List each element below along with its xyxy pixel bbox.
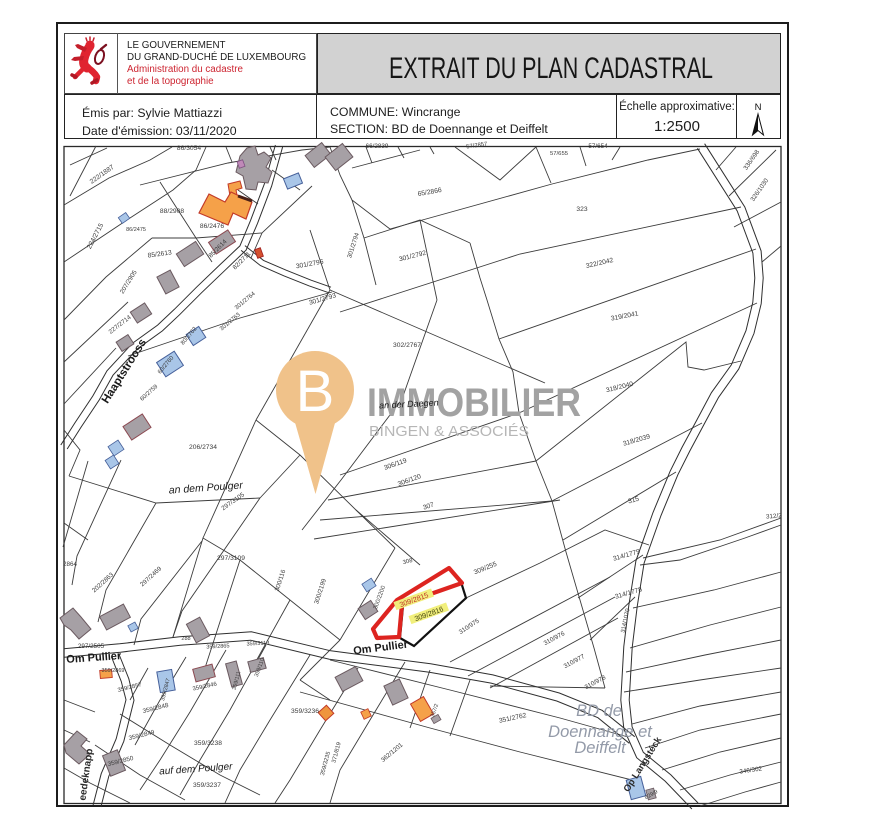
svg-text:371/819: 371/819 [331,742,342,764]
svg-text:301/2763: 301/2763 [219,312,242,333]
svg-text:297/3109: 297/3109 [217,555,245,562]
svg-text:308: 308 [402,558,414,566]
svg-text:318/2040: 318/2040 [605,381,634,395]
svg-text:206/2734: 206/2734 [189,444,217,451]
svg-text:359/3236: 359/3236 [291,708,319,715]
svg-text:300/116: 300/116 [274,568,288,592]
svg-text:351/2762: 351/2762 [498,712,527,725]
svg-text:BD de: BD de [576,702,622,720]
svg-text:an dem Poulger: an dem Poulger [168,479,243,496]
svg-text:359/2865: 359/2865 [206,643,230,650]
svg-text:319/2041: 319/2041 [610,310,639,322]
svg-text:301/2792: 301/2792 [398,250,427,264]
svg-text:318/2039: 318/2039 [622,433,651,447]
svg-text:300/2199: 300/2199 [313,577,328,605]
svg-text:Om Pullier: Om Pullier [353,639,410,658]
svg-text:314/1779: 314/1779 [612,548,641,562]
svg-text:306/119: 306/119 [383,457,408,472]
svg-text:359/3113: 359/3113 [246,640,269,647]
svg-text:314/1070: 314/1070 [621,607,632,633]
svg-text:297/2505: 297/2505 [78,643,105,650]
svg-text:88/2908: 88/2908 [160,208,184,215]
svg-text:359/2849: 359/2849 [128,729,156,742]
svg-text:362/1201: 362/1201 [380,741,405,764]
svg-text:315: 315 [627,496,640,506]
svg-text:312/2: 312/2 [766,512,783,520]
svg-text:Deiffelt: Deiffelt [574,739,627,757]
svg-text:307: 307 [422,501,435,511]
svg-text:86/3054: 86/3054 [177,145,201,152]
svg-text:301/2796: 301/2796 [295,259,324,271]
svg-text:309/255: 309/255 [473,561,498,577]
svg-text:310/977: 310/977 [563,653,587,670]
svg-text:65/2866: 65/2866 [417,187,442,198]
svg-text:66/2839: 66/2839 [366,143,389,150]
svg-text:326/1030: 326/1030 [749,177,770,203]
svg-text:359/2869: 359/2869 [102,668,125,674]
svg-text:BINGEN & ASSOCIÉS: BINGEN & ASSOCIÉS [369,423,529,440]
svg-text:359/3237: 359/3237 [193,782,221,789]
svg-text:207/2905: 207/2905 [119,269,139,295]
svg-text:306/120: 306/120 [397,473,422,488]
svg-text:346/302: 346/302 [739,765,763,775]
svg-text:86/2476: 86/2476 [200,223,224,230]
svg-text:202/2863: 202/2863 [91,571,116,594]
svg-text:302/2767: 302/2767 [393,342,421,349]
svg-text:86/2475: 86/2475 [126,227,146,233]
svg-text:57/2857: 57/2857 [466,142,488,151]
svg-text:2864: 2864 [63,561,78,568]
svg-text:57/655: 57/655 [550,151,569,157]
svg-text:336/698: 336/698 [742,148,761,171]
svg-text:85/2613: 85/2613 [147,249,172,259]
svg-text:322/2042: 322/2042 [585,257,614,270]
svg-text:288: 288 [181,636,190,642]
svg-text:323: 323 [576,206,587,213]
svg-text:60/2759: 60/2759 [139,384,159,403]
svg-text:auf dem Poulger: auf dem Poulger [159,761,234,777]
svg-text:297/3105: 297/3105 [220,491,246,512]
svg-text:359/3235: 359/3235 [320,750,332,776]
svg-text:297/2469: 297/2469 [139,565,164,588]
svg-text:359/2848: 359/2848 [142,702,170,715]
svg-text:310/975: 310/975 [458,617,481,636]
svg-text:310/976: 310/976 [543,630,567,647]
svg-text:359/2846: 359/2846 [192,681,218,692]
svg-text:301/2794: 301/2794 [346,231,361,259]
svg-text:B: B [296,359,335,424]
svg-text:359/3238: 359/3238 [194,740,222,747]
svg-text:57/654: 57/654 [588,143,608,150]
svg-text:300/2200: 300/2200 [373,584,387,610]
svg-text:301/2764: 301/2764 [234,291,257,312]
